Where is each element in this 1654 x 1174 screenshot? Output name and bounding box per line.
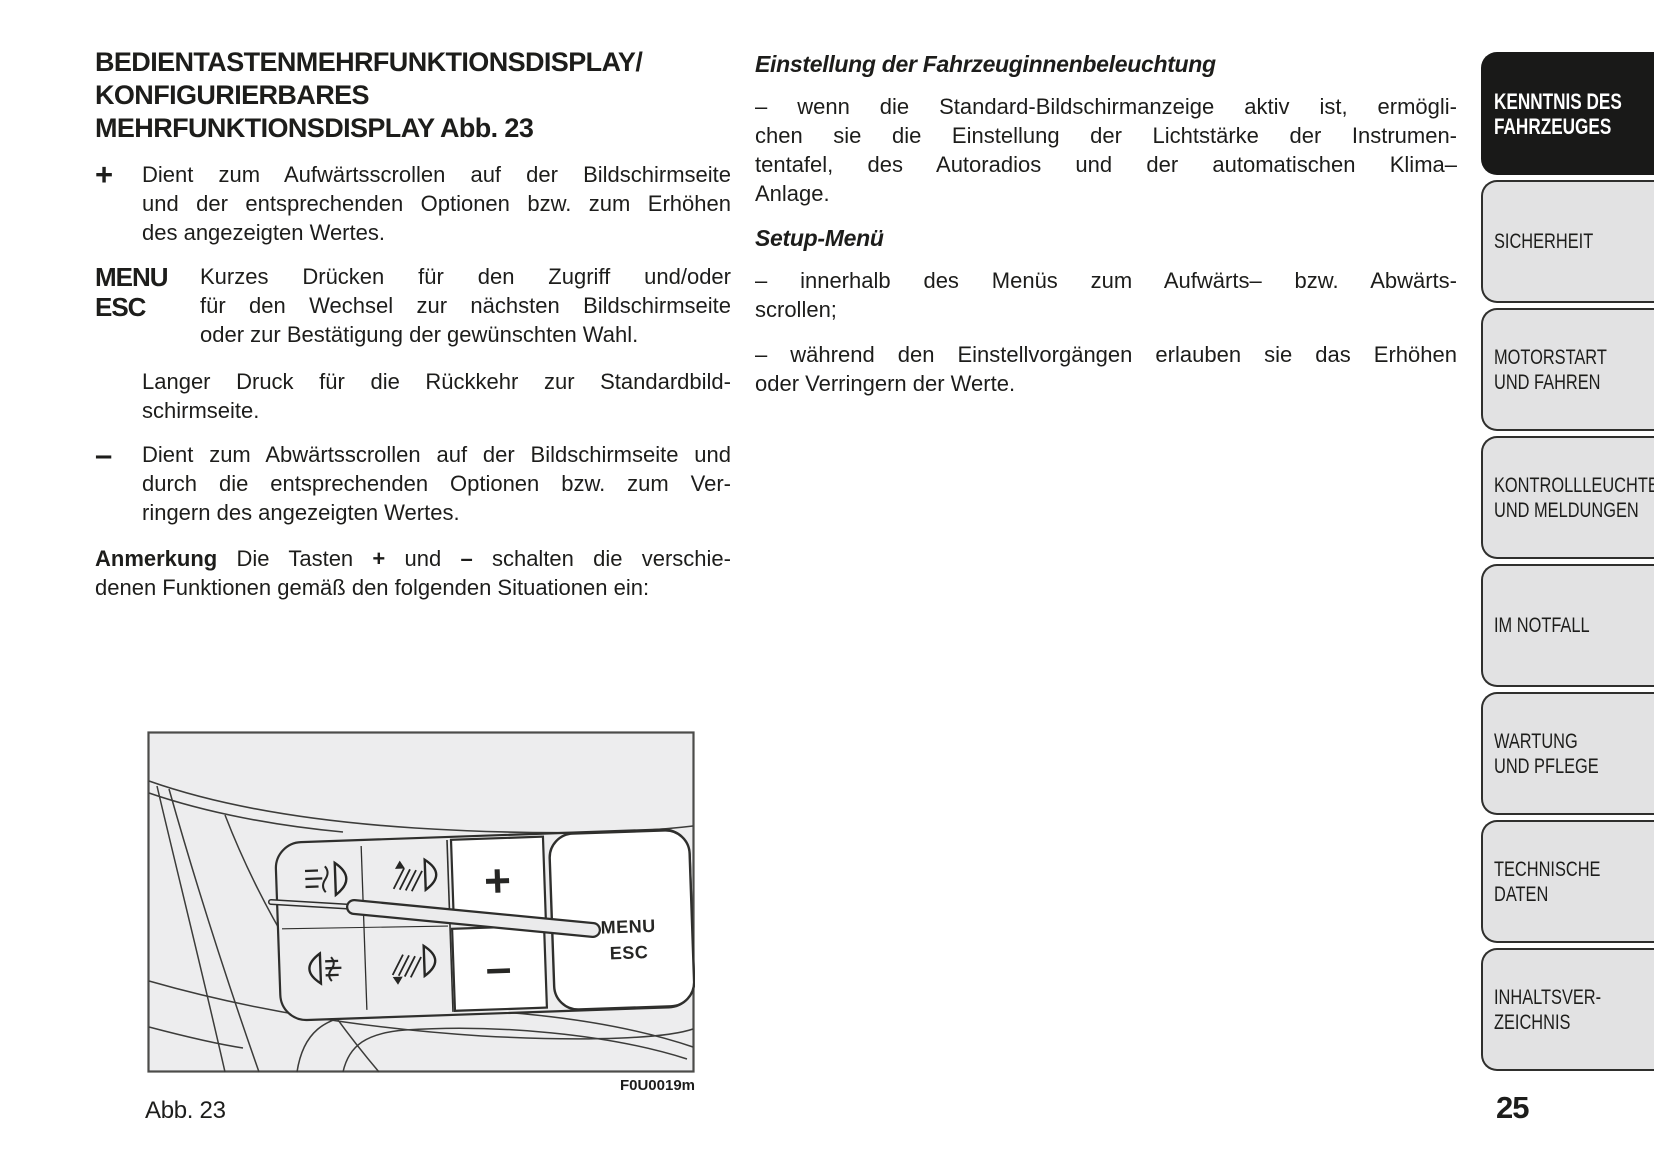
tab-motorstart-und-fahren: MOTORSTARTUND FAHREN <box>1481 308 1654 431</box>
note-paragraph: Anmerkung Die Tasten + und – schalten di… <box>95 544 731 602</box>
minus-button-label: – <box>485 941 512 994</box>
tab-kenntnis-des-fahrzeuges: KENNTNIS DESFAHRZEUGES <box>1481 52 1654 175</box>
interior-lighting-heading: Einstellung der Fahrzeuginnenbeleuchtung <box>755 50 1457 78</box>
page-number: 25 <box>1496 1090 1528 1126</box>
figure-caption: Abb. 23 <box>145 1097 226 1125</box>
dashboard-controls-illustration: + – MENU ESC <box>147 731 695 1073</box>
menu-esc-description-text: Kurzes Drücken für den Zugriff und/oder … <box>200 262 731 349</box>
tab-sicherheit: SICHERHEIT <box>1481 180 1654 303</box>
plus-button-description: + Dient zum Aufwärtsscrollen auf der Bil… <box>95 160 731 247</box>
manual-page: { "page": { "number": "25" }, "colors": … <box>0 0 1654 1174</box>
section-heading: BEDIENTASTENMEHRFUNKTIONSDISPLAY/ KONFIG… <box>95 46 731 145</box>
minus-button-description: – Dient zum Abwärtsscrollen auf der Bild… <box>95 440 731 527</box>
figure-abb-23: + – MENU ESC <box>147 731 695 1073</box>
tab-im-notfall: IM NOTFALL <box>1481 564 1654 687</box>
long-press-paragraph: Langer Druck für die Rückkehr zur Standa… <box>142 367 731 425</box>
menu-esc-label: MENU ESC <box>95 262 200 349</box>
interior-lighting-paragraph: – wenn die Standard-Bildschirmanzeige ak… <box>755 92 1457 208</box>
esc-label: ESC <box>609 942 648 963</box>
plus-description-text: Dient zum Aufwärtsscrollen auf der Bilds… <box>142 160 731 247</box>
setup-menu-heading: Setup-Menü <box>755 224 1457 252</box>
minus-description-text: Dient zum Abwärtsscrollen auf der Bildsc… <box>142 440 731 527</box>
chapter-tab-index: KENNTNIS DESFAHRZEUGES SICHERHEIT MOTORS… <box>1481 52 1654 1076</box>
plus-symbol-label: + <box>95 160 142 247</box>
minus-symbol-label: – <box>95 440 142 527</box>
tab-wartung-und-pflege: WARTUNGUND PFLEGE <box>1481 692 1654 815</box>
menu-esc-description: MENU ESC Kurzes Drücken für den Zugriff … <box>95 262 731 349</box>
setup-menu-paragraph-2: – während den Einstellvorgängen erlauben… <box>755 340 1457 398</box>
setup-menu-paragraph-1: – innerhalb des Menüs zum Aufwärts– bzw.… <box>755 266 1457 324</box>
plus-button-label: + <box>483 854 512 907</box>
tab-inhaltsverzeichnis: INHALTSVER-ZEICHNIS <box>1481 948 1654 1071</box>
left-text-column: BEDIENTASTENMEHRFUNKTIONSDISPLAY/ KONFIG… <box>95 46 731 602</box>
tab-kontrollleuchten-und-meldungen: KONTROLLLEUCHTENUND MELDUNGEN <box>1481 436 1654 559</box>
figure-code: F0U0019m <box>395 1077 695 1094</box>
tab-technische-daten: TECHNISCHEDATEN <box>1481 820 1654 943</box>
right-text-column: Einstellung der Fahrzeuginnenbeleuchtung… <box>755 50 1457 414</box>
menu-label: MENU <box>600 916 656 938</box>
